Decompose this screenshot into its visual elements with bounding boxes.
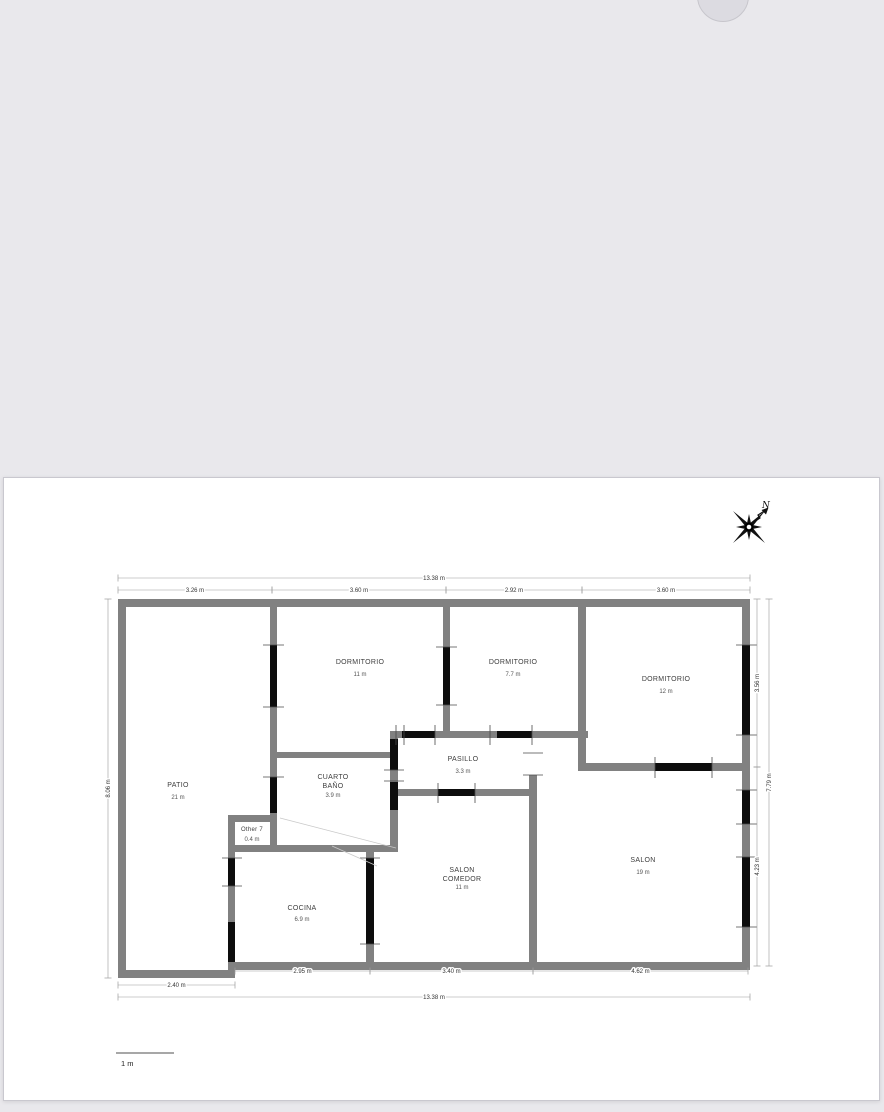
opening-marker: [270, 777, 277, 813]
room-label: BAÑO: [322, 781, 343, 790]
dimension-label: 8.06 m: [106, 779, 112, 797]
room-area-label: 21 m: [171, 795, 184, 801]
opening-marker: [438, 789, 475, 796]
opening-marker: [742, 790, 750, 824]
room-area-label: 6.9 m: [294, 917, 309, 923]
wall-segment: [228, 815, 277, 822]
opening-marker: [228, 858, 235, 886]
wall-segment: [118, 599, 750, 607]
room-area-label: 11 m: [456, 885, 469, 891]
wall-segment: [118, 599, 126, 978]
dimension-label: 2.40 m: [167, 983, 185, 989]
opening-marker: [497, 731, 532, 738]
floorplan-layer: 13.38 m3.26 m3.60 m2.92 m3.60 m2.95 m3.4…: [105, 575, 774, 1002]
room-area-label: 3.9 m: [325, 793, 340, 799]
room-label: SALON: [630, 857, 655, 864]
scale-bar-label: 1 m: [121, 1059, 134, 1068]
dimension-label: 3.40 m: [442, 969, 460, 975]
wall-segment: [270, 813, 277, 845]
room-area-label: 11 m: [354, 672, 367, 678]
wall-segment: [228, 815, 235, 852]
opening-marker: [228, 922, 235, 962]
opening-marker: [655, 763, 712, 771]
dimension-label: 13.38 m: [423, 995, 445, 1001]
room-area-label: 12 m: [659, 689, 672, 695]
opening-marker: [742, 857, 750, 927]
compass-hub: [746, 524, 753, 531]
dimension-label: 13.38 m: [423, 576, 445, 582]
wall-segment: [578, 599, 586, 771]
wall-segment: [529, 775, 537, 966]
dimension-label: 3.26 m: [186, 588, 204, 594]
room-label: DORMITORIO: [489, 659, 538, 666]
compass-rose: N: [733, 501, 771, 543]
dimension-label: 7.79 m: [767, 773, 773, 791]
room-area-label: 19 m: [636, 870, 649, 876]
opening-marker: [390, 739, 398, 770]
compass-north-label: N: [761, 501, 771, 511]
room-label: DORMITORIO: [642, 676, 691, 683]
wall-segment: [118, 970, 235, 978]
dimension-label: 2.92 m: [505, 588, 523, 594]
door-swing-line: [280, 818, 396, 848]
scale-bar: 1 m: [116, 1053, 174, 1068]
dimension-label: 2.95 m: [293, 969, 311, 975]
opening-marker: [742, 645, 750, 735]
dimension-label: 4.23 m: [755, 857, 761, 875]
opening-marker: [366, 858, 374, 944]
room-label: PASILLO: [448, 756, 479, 763]
room-label: PATIO: [167, 782, 189, 789]
room-label: COCINA: [287, 905, 316, 912]
room-area-label: 0.4 m: [244, 837, 259, 843]
room-label: COMEDOR: [443, 876, 482, 883]
opening-marker: [270, 645, 277, 707]
wall-segment: [270, 752, 398, 758]
dimension-label: 4.62 m: [631, 969, 649, 975]
app-background: 13.38 m3.26 m3.60 m2.92 m3.60 m2.95 m3.4…: [0, 0, 884, 1112]
room-area-label: 3.3 m: [455, 769, 470, 775]
room-label: Other 7: [241, 827, 263, 833]
opening-marker: [443, 647, 450, 705]
opening-marker: [402, 731, 435, 738]
room-label: SALON: [449, 867, 474, 874]
dimension-label: 3.60 m: [657, 588, 675, 594]
dimension-label: 3.56 m: [755, 674, 761, 692]
room-area-label: 7.7 m: [505, 672, 520, 678]
room-label: CUARTO: [317, 774, 348, 781]
opening-marker: [390, 782, 398, 810]
floorplan-svg: 13.38 m3.26 m3.60 m2.92 m3.60 m2.95 m3.4…: [0, 0, 884, 1112]
room-label: DORMITORIO: [336, 659, 385, 666]
dimension-label: 3.60 m: [350, 588, 368, 594]
